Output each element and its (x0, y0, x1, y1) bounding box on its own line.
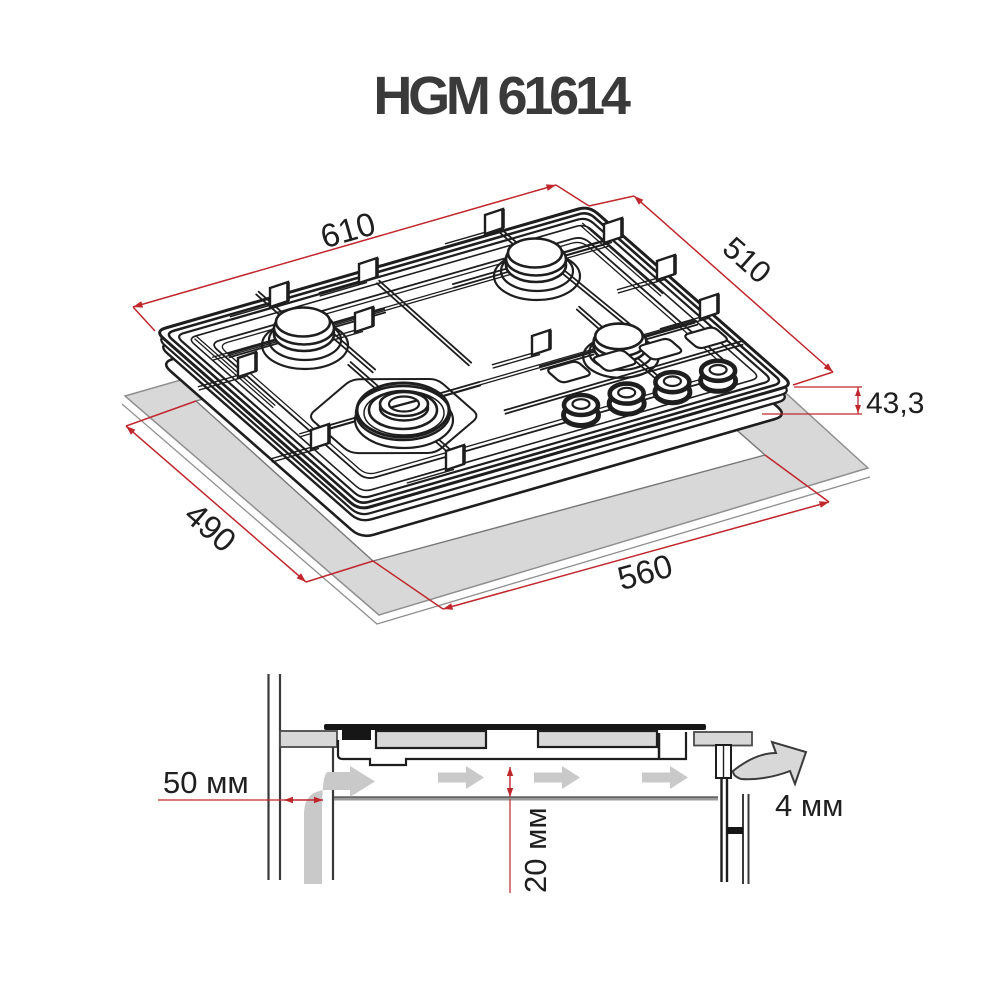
svg-text:20 мм: 20 мм (518, 807, 553, 893)
svg-text:HGM 61614: HGM 61614 (373, 66, 631, 126)
svg-text:50 мм: 50 мм (163, 765, 249, 800)
svg-text:4 мм: 4 мм (775, 788, 843, 823)
svg-text:43,3: 43,3 (866, 387, 924, 420)
